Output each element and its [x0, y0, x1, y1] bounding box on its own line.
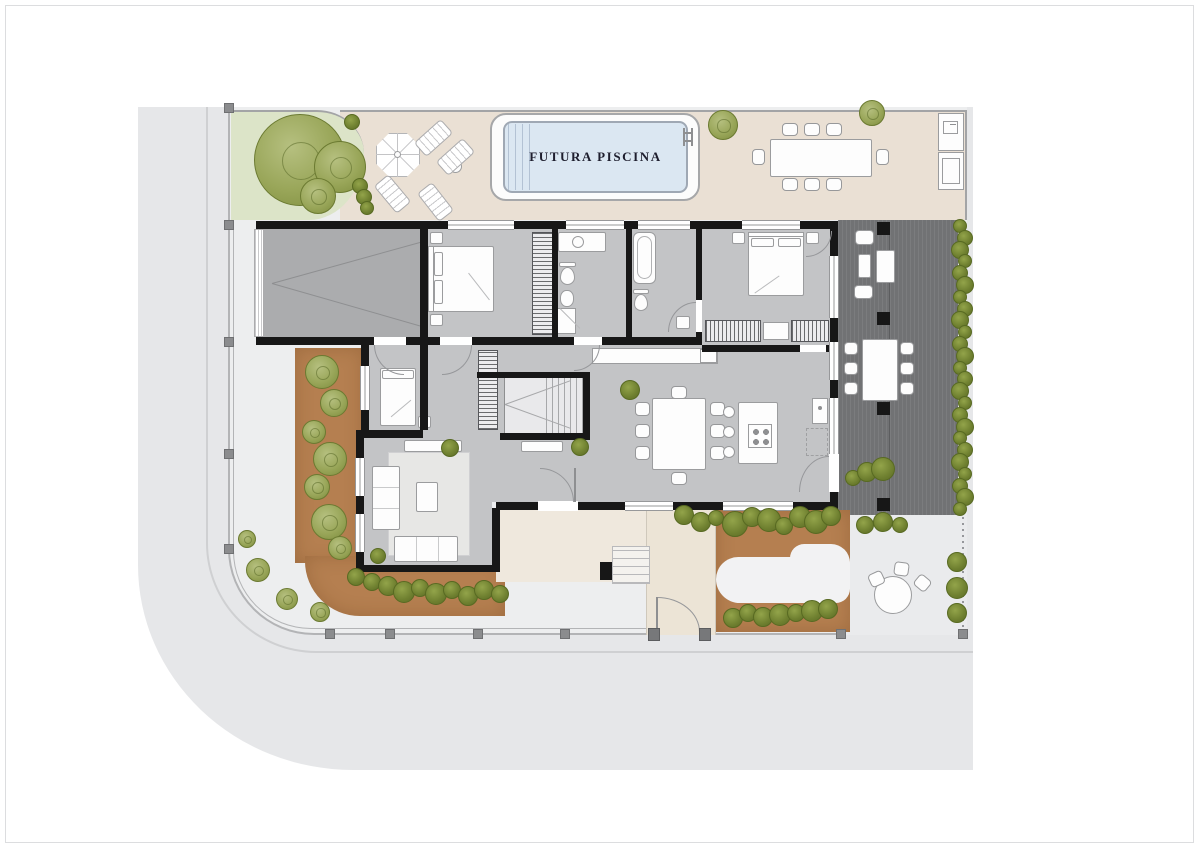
entry-door-opening [538, 501, 578, 511]
outdoor-dining-chair [752, 149, 765, 165]
outdoor-dining-chair [782, 178, 798, 191]
pergola-post [877, 222, 890, 235]
wardrobe-shelf [763, 322, 789, 340]
dining-chair [671, 472, 687, 485]
tree [328, 536, 352, 560]
outdoor-dining-table [770, 139, 872, 177]
pool-ladder [683, 128, 685, 146]
bar-stool [723, 446, 735, 458]
pool-ladder [683, 140, 693, 142]
pillow [778, 238, 801, 247]
bush [491, 585, 509, 603]
bush [571, 438, 589, 456]
door-opening [800, 345, 826, 352]
wall [552, 229, 558, 337]
window [566, 220, 624, 230]
wall [256, 337, 438, 345]
cooktop [748, 424, 772, 448]
outdoor-dining-chair [826, 178, 842, 191]
lounge-chair [855, 230, 874, 245]
tree [302, 420, 326, 444]
bush [620, 380, 640, 400]
door-opening [829, 454, 839, 492]
nightstand [430, 314, 443, 326]
sofa [372, 466, 400, 530]
bar-stool [723, 426, 735, 438]
fence-post [224, 449, 234, 459]
outdoor-kitchen-cabinet-door [942, 158, 960, 184]
window [638, 220, 690, 230]
pool-label: FUTURA PISCINA [503, 149, 688, 165]
deck-dining-chair [844, 342, 858, 355]
bush [360, 201, 374, 215]
entry-steps [612, 546, 650, 584]
tree [276, 588, 298, 610]
dining-chair [635, 446, 650, 460]
bathtub-basin [637, 236, 652, 279]
outdoor-kitchen-sink [943, 121, 958, 134]
window [742, 220, 800, 230]
bush [344, 114, 360, 130]
tree [300, 178, 336, 214]
wall [492, 508, 500, 572]
tree [305, 355, 339, 389]
patio-chair [893, 561, 910, 577]
fence-post [560, 629, 570, 639]
wardrobe-hatch [705, 320, 761, 342]
lounge-chair [854, 285, 873, 299]
coffee-table [416, 482, 438, 512]
dining-table [652, 398, 706, 470]
stair-treads [546, 377, 585, 433]
pool-ladder [683, 132, 693, 134]
sink [572, 236, 584, 248]
bush [441, 439, 459, 457]
door-opening [574, 337, 602, 345]
toilet [634, 294, 648, 311]
pantry-dashed [806, 428, 828, 456]
outdoor-dining-chair [804, 123, 820, 136]
gate-post [648, 628, 660, 641]
window [829, 398, 839, 454]
wall [583, 372, 590, 440]
wall [356, 565, 500, 572]
wall [361, 430, 423, 438]
garden-path [790, 544, 850, 574]
lounge-sofa [876, 250, 895, 283]
dining-chair [635, 402, 650, 416]
dining-chair [635, 424, 650, 438]
faucet [818, 406, 822, 410]
deck-dining-chair [844, 382, 858, 395]
pergola-post [877, 312, 890, 325]
fence-post [224, 103, 234, 113]
parasol-pole [394, 151, 401, 158]
bush [873, 512, 893, 532]
deck-dining-chair [900, 362, 914, 375]
gate-post [699, 628, 711, 641]
fence-post [473, 629, 483, 639]
tree [304, 474, 330, 500]
window [625, 501, 673, 511]
nightstand [430, 232, 443, 244]
sliding-door [829, 342, 839, 380]
bidet [560, 290, 574, 307]
pillow [434, 280, 443, 304]
toilet [560, 267, 575, 285]
faucet [950, 124, 956, 125]
pergola-post [877, 498, 890, 511]
tree [320, 389, 348, 417]
fence-post [836, 629, 846, 639]
bush [370, 548, 386, 564]
bush [892, 517, 908, 533]
tree [238, 530, 256, 548]
bush [947, 603, 967, 623]
wardrobe-hatch [478, 350, 498, 430]
porch-wall [600, 562, 612, 580]
bar-stool [723, 406, 735, 418]
bush [821, 506, 841, 526]
fence-post [325, 629, 335, 639]
window [829, 256, 839, 318]
bush [947, 552, 967, 572]
pool-ladder [691, 128, 693, 146]
bush [818, 599, 838, 619]
wall [626, 229, 632, 337]
deck-dining-chair [900, 382, 914, 395]
door-opening [696, 300, 702, 332]
wall [420, 345, 428, 430]
pergola-post [877, 402, 890, 415]
tree [246, 558, 270, 582]
site-plan: FUTURA PISCINA [0, 0, 1200, 848]
console-table [521, 441, 563, 452]
fence-post [224, 337, 234, 347]
window [448, 220, 514, 230]
outdoor-dining-chair [804, 178, 820, 191]
wall [477, 372, 589, 378]
window [355, 458, 365, 496]
lounge-table [858, 254, 871, 278]
dining-chair [671, 386, 687, 399]
outdoor-dining-chair [876, 149, 889, 165]
tree [313, 442, 347, 476]
door-leaf [574, 468, 576, 502]
tree [859, 100, 885, 126]
door-opening [440, 337, 472, 345]
bush [946, 577, 968, 599]
fence-post [224, 220, 234, 230]
tree [310, 602, 330, 622]
deck-dining-chair [900, 342, 914, 355]
tree [311, 504, 347, 540]
garage-door [254, 229, 264, 337]
wardrobe-hatch [791, 320, 829, 342]
bush [871, 457, 895, 481]
fence-post [224, 544, 234, 554]
window [360, 366, 370, 410]
pillow [434, 252, 443, 276]
deck-dining-chair [844, 362, 858, 375]
door-opening [374, 337, 406, 345]
nightstand [732, 232, 745, 244]
wardrobe-hatch [532, 232, 554, 335]
fence-post [385, 629, 395, 639]
bush [856, 516, 874, 534]
tree [708, 110, 738, 140]
fence-post [958, 629, 968, 639]
deck-dining-table [862, 339, 898, 401]
window [355, 514, 365, 552]
outdoor-dining-chair [782, 123, 798, 136]
kitchen-sink-unit [812, 398, 828, 424]
outdoor-dining-chair [826, 123, 842, 136]
headboard [748, 232, 804, 237]
wall [420, 229, 428, 345]
pillow [751, 238, 774, 247]
sofa [394, 536, 458, 562]
